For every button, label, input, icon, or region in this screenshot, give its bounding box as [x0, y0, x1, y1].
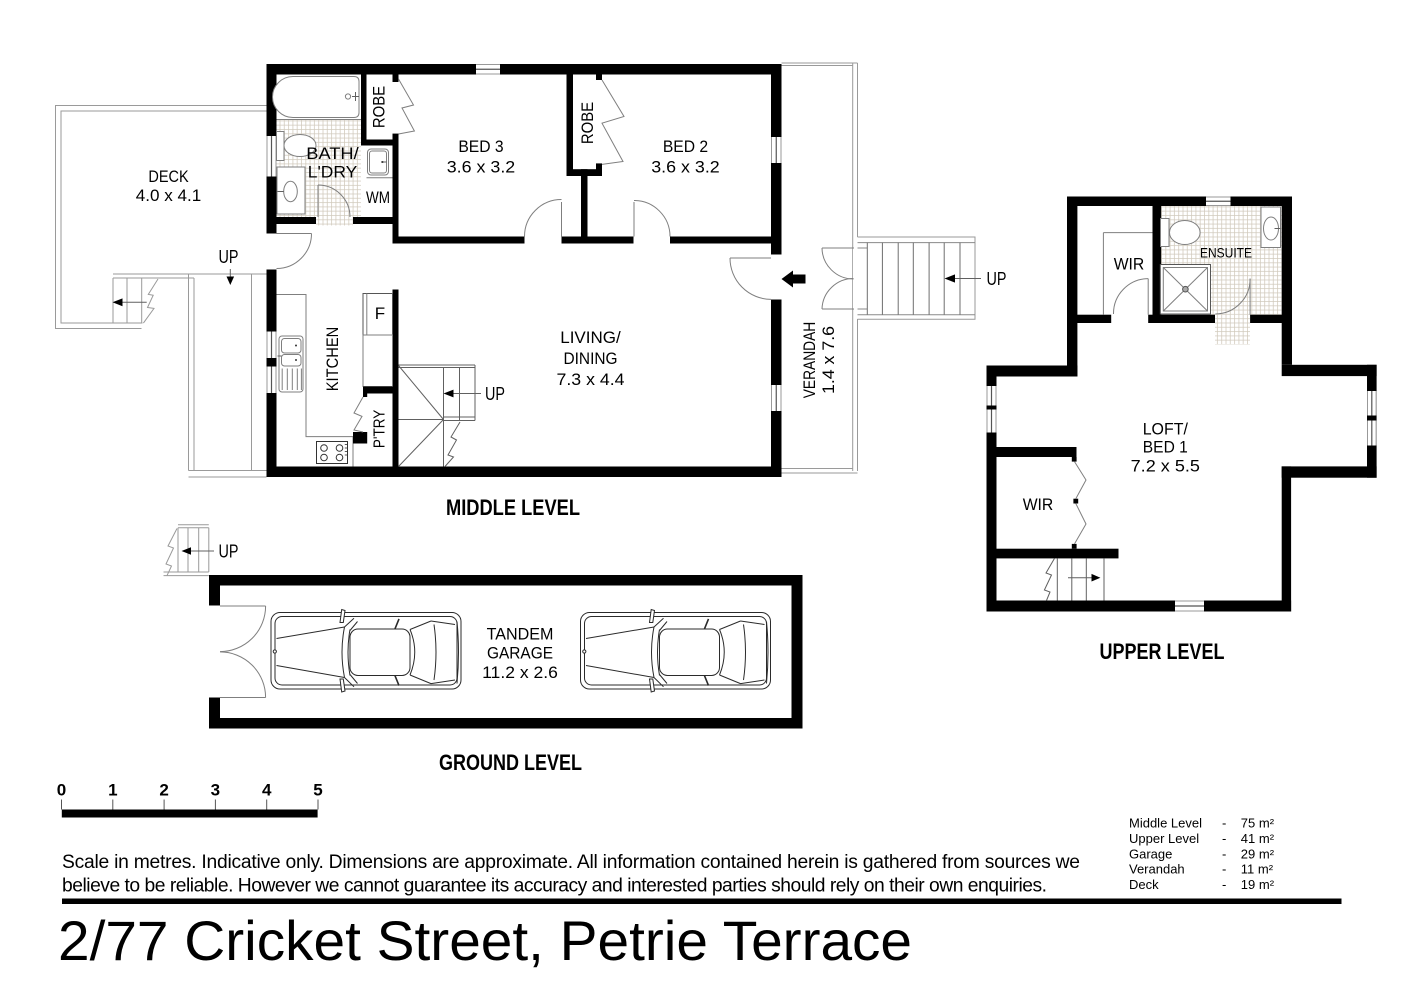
svg-text:0: 0	[57, 781, 66, 800]
svg-text:VERANDAH: VERANDAH	[800, 322, 819, 399]
svg-text:Middle Level: Middle Level	[1129, 816, 1202, 831]
svg-text:1.4 x 7.6: 1.4 x 7.6	[819, 326, 838, 394]
svg-text:5: 5	[313, 781, 322, 800]
svg-text:KITCHEN: KITCHEN	[323, 327, 342, 392]
svg-text:BATH/: BATH/	[306, 144, 359, 163]
svg-text:DECK: DECK	[148, 167, 189, 186]
svg-text:F: F	[375, 304, 385, 323]
svg-text:DINING: DINING	[564, 349, 618, 368]
svg-text:BED 1: BED 1	[1143, 438, 1188, 457]
svg-text:UP: UP	[987, 269, 1007, 289]
svg-text:Upper Level: Upper Level	[1129, 831, 1199, 846]
svg-text:UPPER LEVEL: UPPER LEVEL	[1100, 639, 1225, 664]
svg-text:-: -	[1222, 862, 1226, 877]
svg-text:BED 3: BED 3	[458, 137, 503, 156]
svg-text:19 m²: 19 m²	[1241, 877, 1275, 892]
svg-text:2: 2	[159, 781, 168, 800]
svg-text:LOFT/: LOFT/	[1143, 420, 1188, 439]
svg-text:3.6 x 3.2: 3.6 x 3.2	[651, 158, 720, 177]
svg-text:2/77 Cricket Street, Petrie Te: 2/77 Cricket Street, Petrie Terrace	[58, 909, 912, 972]
svg-text:ROBE: ROBE	[578, 102, 597, 144]
svg-text:29 m²: 29 m²	[1241, 846, 1275, 861]
svg-text:Scale in metres. Indicative on: Scale in metres. Indicative only. Dimens…	[62, 852, 1080, 873]
svg-text:3: 3	[211, 781, 220, 800]
svg-text:WIR: WIR	[1023, 495, 1054, 514]
svg-text:-: -	[1222, 877, 1226, 892]
svg-text:ENSUITE: ENSUITE	[1200, 245, 1252, 261]
svg-text:WM: WM	[366, 188, 390, 207]
svg-text:GROUND LEVEL: GROUND LEVEL	[439, 750, 582, 775]
svg-text:-: -	[1222, 846, 1226, 861]
svg-text:Verandah: Verandah	[1129, 862, 1185, 877]
svg-text:4.0 x 4.1: 4.0 x 4.1	[136, 186, 202, 205]
svg-text:75 m²: 75 m²	[1241, 816, 1275, 831]
svg-text:-: -	[1222, 816, 1226, 831]
svg-text:UP: UP	[485, 384, 505, 404]
svg-text:believe to be reliable. Howeve: believe to be reliable. However we canno…	[62, 876, 1047, 897]
svg-text:7.3 x 4.4: 7.3 x 4.4	[557, 370, 625, 389]
svg-text:11.2 x 2.6: 11.2 x 2.6	[482, 663, 558, 682]
svg-text:11 m²: 11 m²	[1241, 862, 1274, 877]
svg-text:-: -	[1222, 831, 1226, 846]
svg-text:P'TRY: P'TRY	[371, 410, 388, 448]
svg-text:4: 4	[262, 781, 272, 800]
svg-text:UP: UP	[219, 542, 239, 562]
svg-text:TANDEM: TANDEM	[487, 625, 554, 644]
svg-text:BED 2: BED 2	[663, 137, 708, 156]
svg-text:UP: UP	[219, 247, 239, 267]
svg-text:MIDDLE LEVEL: MIDDLE LEVEL	[446, 495, 580, 520]
svg-text:7.2 x 5.5: 7.2 x 5.5	[1131, 457, 1200, 476]
svg-text:41 m²: 41 m²	[1241, 831, 1275, 846]
svg-text:GARAGE: GARAGE	[487, 644, 553, 663]
svg-text:Deck: Deck	[1129, 877, 1159, 892]
svg-text:L'DRY: L'DRY	[308, 163, 357, 182]
svg-text:Garage: Garage	[1129, 846, 1172, 861]
svg-text:LIVING/: LIVING/	[560, 328, 621, 347]
svg-text:1: 1	[108, 781, 117, 800]
svg-text:WIR: WIR	[1114, 255, 1145, 274]
svg-text:ROBE: ROBE	[369, 86, 388, 128]
svg-text:3.6 x 3.2: 3.6 x 3.2	[447, 158, 516, 177]
